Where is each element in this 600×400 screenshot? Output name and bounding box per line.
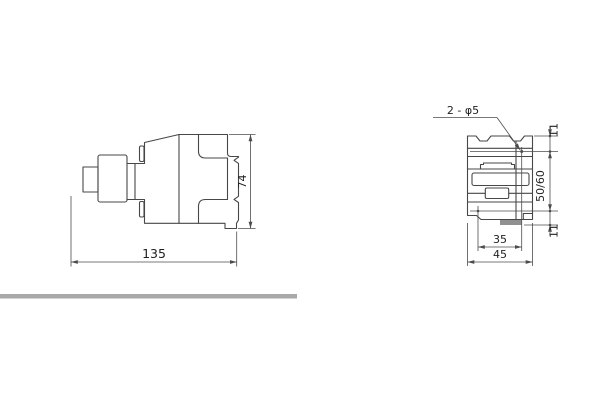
side-front-block [98, 155, 127, 202]
dim-11-top-label: 11 [548, 123, 561, 137]
holes-callout-label: 2 - φ5 [447, 104, 479, 117]
side-view: 135 74 [71, 135, 256, 267]
front-label-recess [485, 188, 508, 199]
side-body-outline [135, 135, 239, 229]
side-clip-tab-bottom [140, 202, 145, 218]
dim-135-label: 135 [142, 246, 166, 261]
dim-35-label: 35 [493, 233, 507, 246]
drawing-page: 135 74 [0, 0, 600, 400]
dim-11-bottom-label: 11 [548, 224, 561, 238]
side-clip-tab-top [140, 146, 145, 162]
side-terminal-block [83, 167, 98, 192]
technical-drawing-canvas: 135 74 [0, 0, 600, 400]
front-foot-tab [500, 220, 522, 225]
dim-45-label: 45 [493, 248, 507, 261]
dim-50-60-label: 50/60 [534, 170, 547, 202]
front-nameplate [472, 173, 529, 186]
dim-74-label: 74 [236, 175, 249, 189]
front-view: 2 - φ5 11 50/60 11 35 45 [433, 104, 561, 266]
separator-bar [0, 294, 297, 299]
